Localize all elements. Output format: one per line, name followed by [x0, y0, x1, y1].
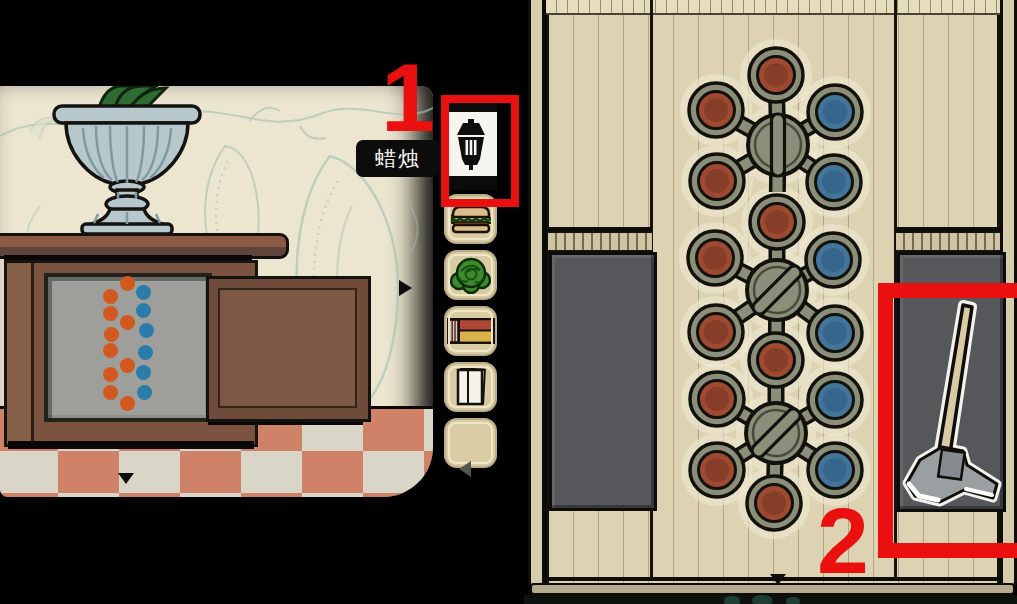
cabinet-dot-panel[interactable] — [44, 273, 212, 422]
inventory-slot-matchbox[interactable] — [444, 306, 497, 356]
cabinet-sliding-door[interactable] — [206, 276, 371, 422]
plant-hint — [752, 595, 772, 604]
cabinet-stile — [7, 263, 34, 444]
nav-right-arrow-icon[interactable] — [399, 280, 412, 296]
annotation-number-2: 2 — [817, 505, 869, 578]
knob-blue[interactable] — [808, 306, 862, 360]
sandwich-icon — [447, 204, 495, 234]
valve-dial[interactable] — [746, 403, 806, 463]
left-pillar — [528, 0, 545, 590]
paper-icon — [454, 366, 488, 408]
lettuce-icon — [449, 255, 493, 295]
knob-blue[interactable] — [808, 85, 862, 139]
knob-red[interactable] — [690, 372, 744, 426]
knob-blue[interactable] — [806, 233, 860, 287]
inventory-slot-paper[interactable] — [444, 362, 497, 412]
knob-red[interactable] — [689, 83, 743, 137]
valve-bar — [772, 114, 785, 176]
inventory-prev-arrow-icon[interactable] — [459, 461, 471, 477]
matchbox-icon — [447, 318, 495, 344]
knob-red[interactable] — [689, 305, 743, 359]
knob-red[interactable] — [747, 476, 801, 530]
knob-red[interactable] — [688, 231, 742, 285]
knob-blue[interactable] — [808, 373, 862, 427]
cabinet-shadow — [8, 441, 254, 449]
knob-red[interactable] — [750, 195, 804, 249]
panel-slat-strip — [896, 231, 1000, 253]
plant-hint — [724, 596, 740, 604]
knob-red[interactable] — [690, 154, 744, 208]
knob-red[interactable] — [690, 443, 744, 497]
valve-knob-puzzle[interactable] — [586, 30, 886, 550]
valve-dial[interactable] — [747, 260, 807, 320]
annotation-box-1 — [441, 95, 519, 207]
nav-down-arrow-icon[interactable] — [118, 473, 134, 484]
inventory-slot-lettuce[interactable] — [444, 250, 497, 300]
urn-with-plant — [38, 86, 218, 246]
knob-red[interactable] — [749, 48, 803, 102]
game-screenshot: 蜡烛 — [0, 0, 1017, 604]
floor-strip — [524, 595, 1017, 604]
plant-hint — [786, 597, 800, 604]
knob-blue[interactable] — [807, 155, 861, 209]
door-inner-panel — [218, 288, 357, 408]
annotation-number-1: 1 — [381, 60, 435, 136]
wall-top-band — [546, 0, 1000, 15]
valve-dial[interactable] — [748, 114, 808, 176]
nav-down-arrow-icon[interactable] — [770, 574, 786, 585]
annotation-box-2 — [878, 283, 1017, 558]
knob-red[interactable] — [749, 333, 803, 387]
